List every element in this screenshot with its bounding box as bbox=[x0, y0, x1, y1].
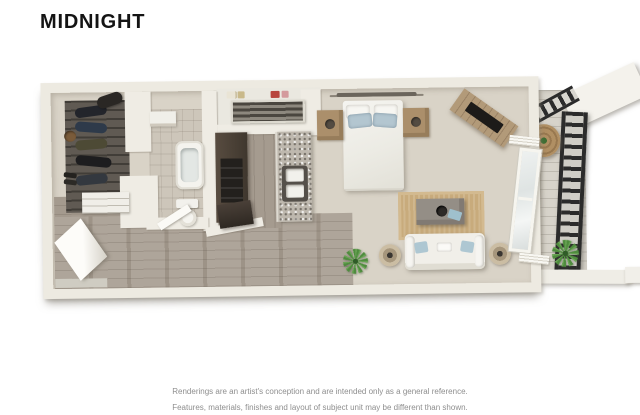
shelf-item bbox=[271, 91, 280, 98]
sofa bbox=[405, 233, 485, 270]
window-mullion bbox=[518, 197, 532, 201]
balcony-ledge-cap bbox=[625, 267, 640, 283]
sofa-arm bbox=[406, 236, 415, 268]
clothes-item bbox=[75, 138, 108, 151]
sofa-pillow-white bbox=[437, 242, 452, 251]
kitchen-cabinet-end bbox=[217, 200, 254, 229]
nightstand-right bbox=[403, 108, 429, 137]
closet-clothes-rack bbox=[73, 106, 116, 203]
bed-pillow-blue bbox=[373, 113, 398, 129]
bathtub bbox=[175, 141, 204, 189]
kitchen-range bbox=[221, 158, 244, 202]
nightstand-decor bbox=[411, 117, 421, 127]
floorplan-rendering bbox=[38, 69, 640, 317]
kitchen-double-sink bbox=[282, 165, 309, 201]
nightstand-left bbox=[317, 110, 343, 140]
sofa-pillow-blue bbox=[460, 240, 475, 253]
bed-pillow-blue bbox=[347, 113, 372, 129]
page: MIDNIGHT bbox=[0, 0, 640, 415]
closet-dresser bbox=[82, 192, 129, 214]
bathtub-basin bbox=[180, 148, 198, 182]
floorplan-title: MIDNIGHT bbox=[40, 11, 145, 34]
bathroom-vanity bbox=[150, 111, 176, 126]
shelf-item bbox=[227, 91, 236, 98]
nightstand-decor bbox=[325, 119, 335, 129]
wall-closet-bathroom bbox=[125, 92, 152, 152]
bed bbox=[343, 100, 404, 191]
clothes-item bbox=[75, 155, 112, 168]
sofa-arm bbox=[475, 235, 484, 267]
disclaimer-line-2: Features, materials, finishes and layout… bbox=[0, 403, 640, 413]
balcony-ledge bbox=[525, 269, 633, 283]
clothes-item bbox=[75, 173, 108, 186]
decor-tray bbox=[447, 209, 462, 221]
hat bbox=[64, 131, 76, 142]
shelf-item bbox=[238, 91, 245, 98]
decor-bowl bbox=[436, 206, 447, 217]
laundry-closet-shelves bbox=[231, 99, 305, 123]
coffee-table bbox=[416, 198, 464, 225]
sink-basin bbox=[286, 185, 304, 198]
sofa-pillow-blue bbox=[414, 241, 429, 254]
shelf-item bbox=[282, 91, 289, 98]
clothes-item bbox=[75, 121, 108, 133]
disclaimer-line-1: Renderings are an artist's conception an… bbox=[0, 387, 640, 397]
sink-basin bbox=[286, 169, 304, 182]
